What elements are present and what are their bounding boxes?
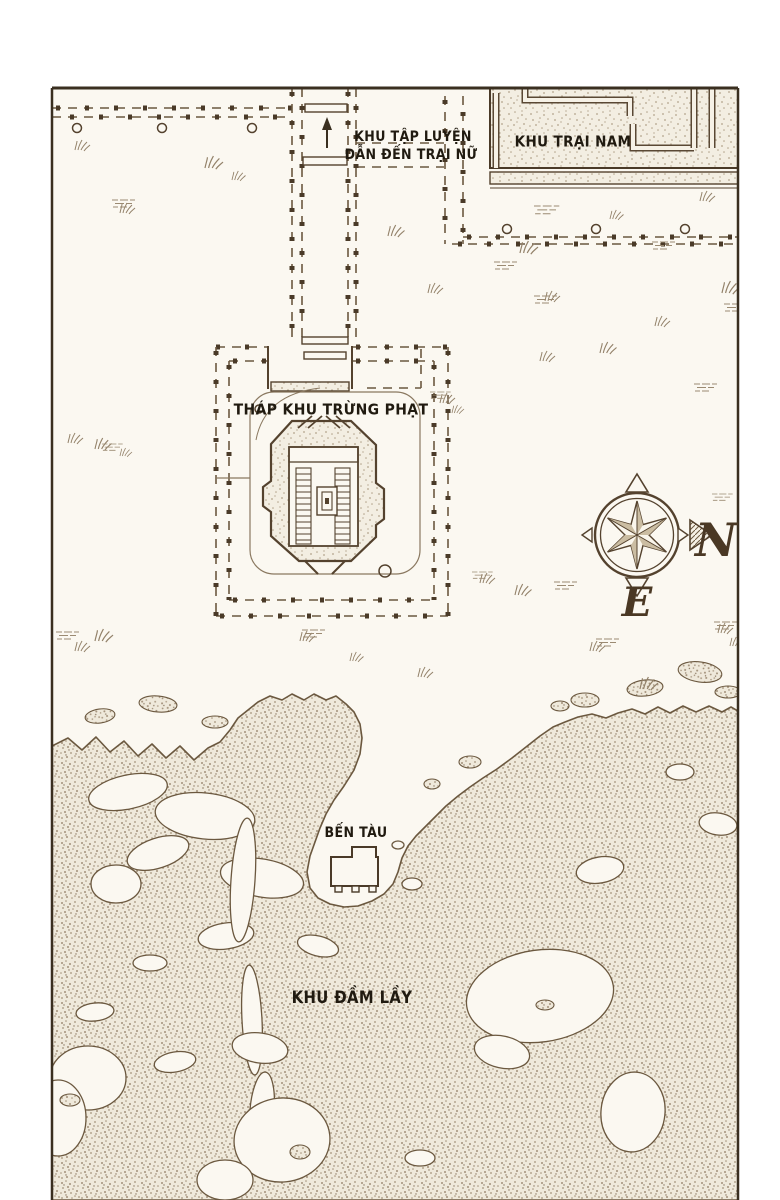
camp-outer-wall-band [490,172,738,184]
label-south-camp: KHU TRẠI NAM [515,135,632,150]
compass-north-letter: N [695,517,737,563]
label-dock: BẾN TÀU [325,826,388,840]
map-page: KHU TẬP LUYỆN DẪN ĐẾN TRẠI NỮ KHU TRẠI N… [0,0,780,1200]
label-training-area-line1: KHU TẬP LUYỆN [354,130,472,144]
label-training-area-line2: DẪN ĐẾN TRẠI NỮ [345,148,478,162]
label-punishment-tower: THÁP KHU TRỪNG PHẠT [234,402,429,418]
label-swamp: KHU ĐẦM LẦY [292,990,413,1007]
tower-center-cell [317,487,337,515]
compass-east-letter: E [622,583,653,623]
map-drawing [0,0,780,1200]
